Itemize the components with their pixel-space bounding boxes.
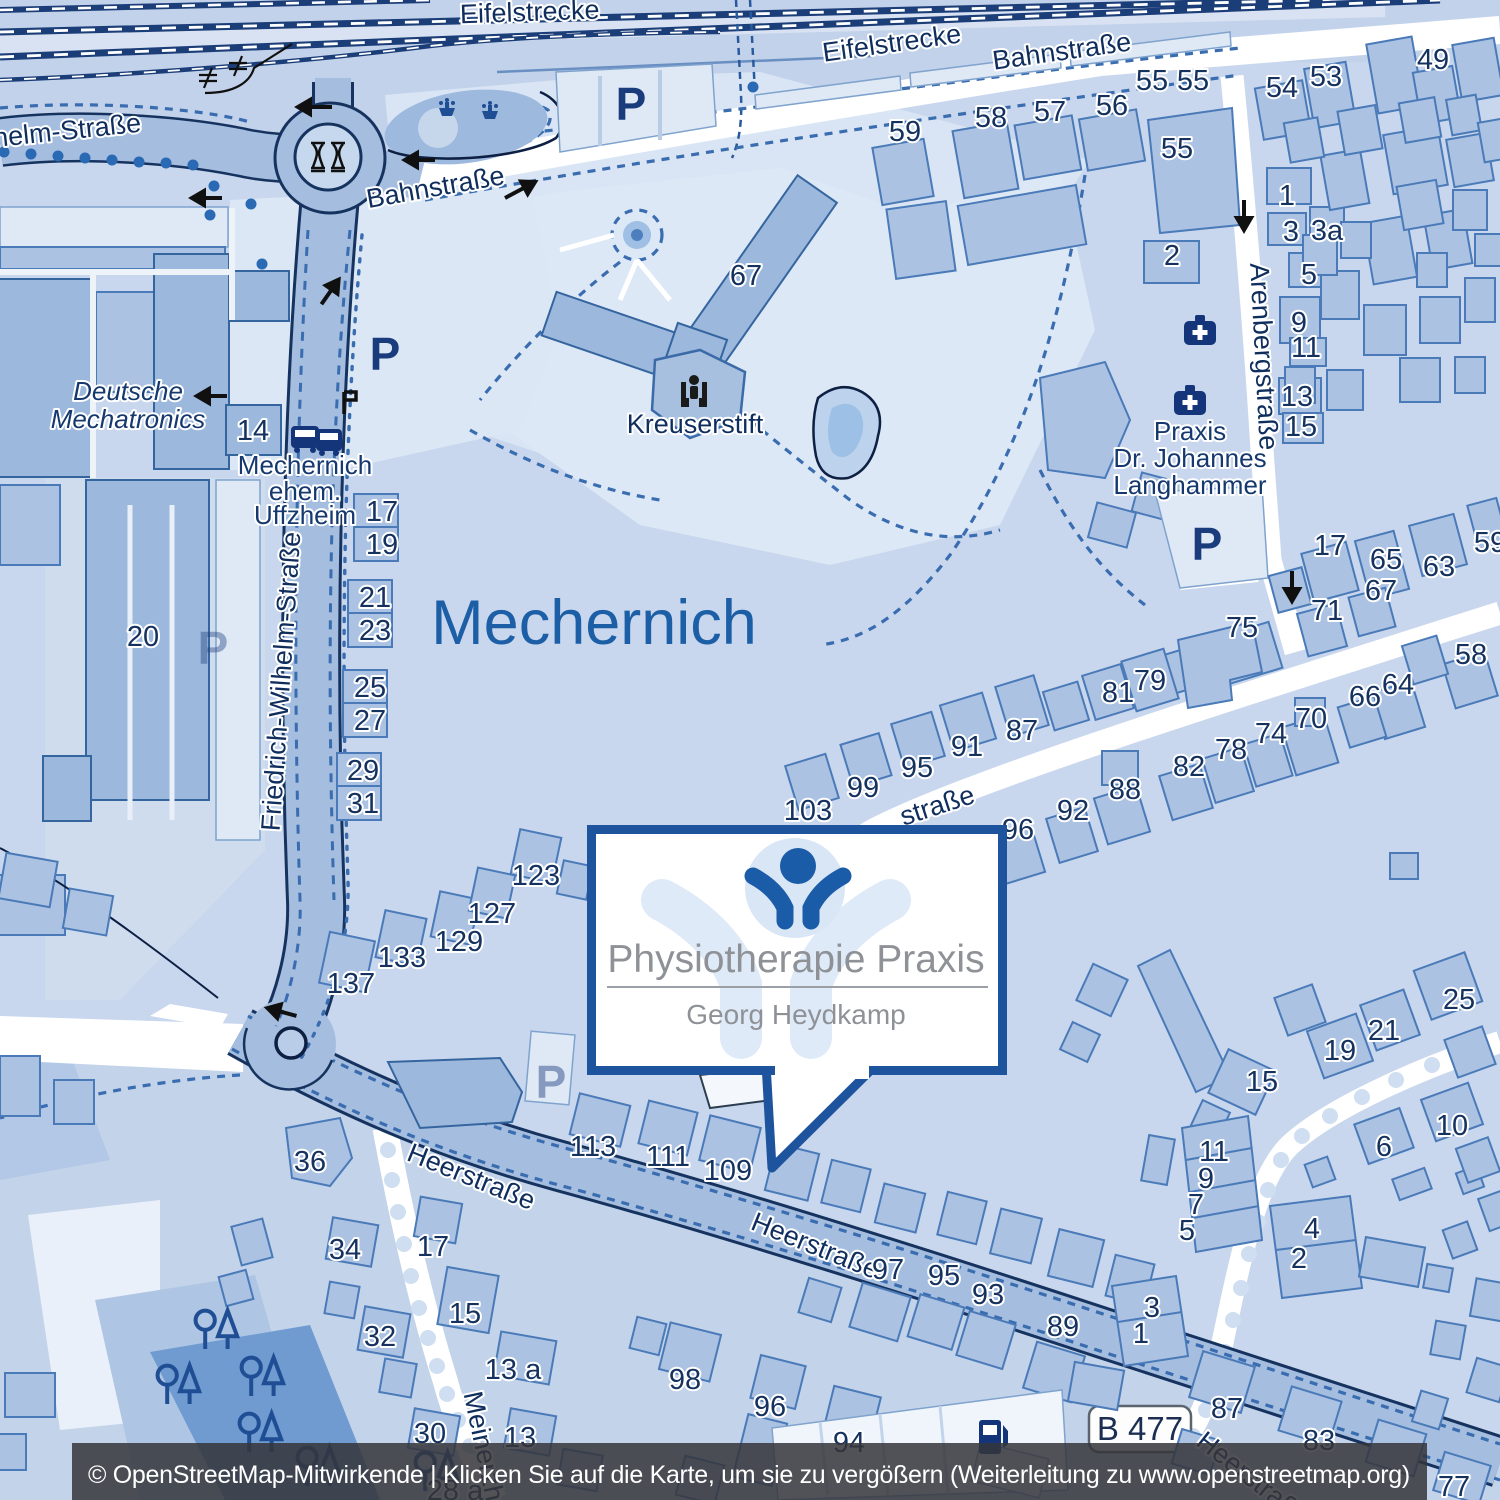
svg-text:15: 15 — [1285, 411, 1317, 443]
svg-text:133: 133 — [378, 942, 426, 974]
svg-text:29: 29 — [347, 755, 379, 787]
svg-text:Langhammer: Langhammer — [1113, 470, 1267, 500]
svg-text:15: 15 — [1246, 1066, 1278, 1098]
svg-text:96: 96 — [754, 1391, 786, 1423]
svg-text:15: 15 — [449, 1298, 481, 1330]
svg-text:5: 5 — [1301, 259, 1317, 291]
svg-text:13 a: 13 a — [485, 1354, 542, 1386]
svg-text:79: 79 — [1134, 665, 1166, 697]
svg-text:31: 31 — [347, 788, 379, 820]
svg-text:91: 91 — [951, 731, 983, 763]
svg-text:63: 63 — [1423, 551, 1455, 583]
svg-text:49: 49 — [1417, 44, 1449, 76]
svg-text:27: 27 — [354, 705, 386, 737]
svg-text:111: 111 — [646, 1141, 690, 1173]
svg-text:6: 6 — [1376, 1131, 1392, 1163]
svg-text:78: 78 — [1215, 734, 1247, 766]
svg-text:P: P — [1192, 518, 1223, 570]
svg-text:Mechatronics: Mechatronics — [51, 404, 206, 434]
svg-text:© OpenStreetMap-Mitwirkende |: © OpenStreetMap-Mitwirkende | Klicken Si… — [88, 1461, 1410, 1489]
svg-text:97: 97 — [872, 1254, 904, 1286]
svg-text:11: 11 — [1291, 332, 1321, 364]
svg-text:Georg Heydkamp: Georg Heydkamp — [686, 999, 905, 1030]
svg-text:77: 77 — [1438, 1471, 1470, 1500]
svg-text:36: 36 — [294, 1146, 326, 1178]
svg-text:55: 55 — [1161, 133, 1193, 165]
svg-text:23: 23 — [359, 615, 391, 647]
svg-text:20: 20 — [127, 621, 159, 653]
svg-text:Dr. Johannes: Dr. Johannes — [1113, 443, 1266, 473]
svg-text:95: 95 — [928, 1260, 960, 1292]
svg-text:P: P — [198, 622, 229, 674]
svg-text:2: 2 — [1291, 1243, 1307, 1275]
svg-text:21: 21 — [1368, 1015, 1400, 1047]
svg-text:P: P — [536, 1056, 567, 1108]
svg-text:66: 66 — [1349, 681, 1381, 713]
svg-text:Kreuserstift: Kreuserstift — [627, 409, 764, 439]
svg-text:67: 67 — [730, 260, 762, 292]
svg-text:56: 56 — [1096, 90, 1128, 122]
svg-text:70: 70 — [1295, 703, 1327, 735]
svg-text:71: 71 — [1311, 595, 1343, 627]
svg-text:3a: 3a — [1311, 215, 1344, 247]
svg-text:Praxis: Praxis — [1154, 416, 1226, 446]
svg-text:25: 25 — [1443, 984, 1475, 1016]
svg-text:P: P — [616, 78, 647, 130]
svg-text:1: 1 — [1279, 180, 1295, 212]
svg-text:Mechernich: Mechernich — [431, 588, 757, 658]
svg-text:82: 82 — [1173, 751, 1205, 783]
svg-text:19: 19 — [1324, 1035, 1356, 1067]
svg-text:4: 4 — [1304, 1213, 1320, 1245]
svg-text:137: 137 — [327, 968, 375, 1000]
svg-text:13: 13 — [1281, 381, 1313, 413]
svg-text:59: 59 — [889, 116, 921, 148]
svg-text:14: 14 — [237, 415, 269, 447]
svg-text:75: 75 — [1226, 612, 1258, 644]
svg-text:Uffzheim: Uffzheim — [254, 500, 356, 530]
svg-text:88: 88 — [1109, 774, 1141, 806]
svg-text:113: 113 — [570, 1131, 616, 1163]
svg-text:21: 21 — [359, 582, 391, 614]
svg-text:89: 89 — [1047, 1311, 1079, 1343]
svg-text:Eifelstrecke: Eifelstrecke — [459, 0, 600, 29]
svg-text:55: 55 — [1177, 65, 1209, 97]
svg-text:109: 109 — [704, 1155, 752, 1187]
svg-text:67: 67 — [1365, 575, 1397, 607]
svg-text:98: 98 — [669, 1364, 701, 1396]
svg-text:5: 5 — [1179, 1215, 1195, 1247]
svg-text:53: 53 — [1310, 61, 1342, 93]
svg-text:Deutsche: Deutsche — [73, 376, 183, 406]
svg-text:57: 57 — [1034, 96, 1066, 128]
svg-text:32: 32 — [364, 1321, 396, 1353]
svg-text:Physiotherapie Praxis: Physiotherapie Praxis — [607, 938, 984, 981]
svg-text:92: 92 — [1057, 795, 1089, 827]
svg-text:1: 1 — [1133, 1318, 1149, 1350]
svg-text:123: 123 — [512, 860, 560, 892]
svg-text:95: 95 — [901, 752, 933, 784]
svg-text:55: 55 — [1136, 65, 1168, 97]
svg-text:99: 99 — [847, 772, 879, 804]
svg-text:2: 2 — [1164, 240, 1180, 272]
svg-text:25: 25 — [354, 672, 386, 704]
svg-text:17: 17 — [417, 1231, 449, 1263]
svg-text:65: 65 — [1370, 544, 1402, 576]
svg-text:17: 17 — [366, 496, 398, 528]
svg-text:87: 87 — [1006, 715, 1038, 747]
svg-text:34: 34 — [329, 1234, 361, 1266]
svg-text:93: 93 — [972, 1279, 1004, 1311]
svg-text:74: 74 — [1255, 718, 1287, 750]
svg-text:19: 19 — [366, 529, 398, 561]
svg-text:87: 87 — [1211, 1393, 1243, 1425]
svg-text:17: 17 — [1314, 530, 1346, 562]
svg-text:59: 59 — [1474, 527, 1500, 559]
svg-text:54: 54 — [1266, 72, 1298, 104]
svg-text:P: P — [370, 328, 401, 380]
svg-text:58: 58 — [975, 102, 1007, 134]
svg-text:129: 129 — [435, 926, 483, 958]
svg-text:58: 58 — [1455, 639, 1487, 671]
svg-text:103: 103 — [784, 795, 832, 827]
svg-text:B 477: B 477 — [1097, 1410, 1183, 1447]
svg-text:3: 3 — [1283, 216, 1299, 248]
svg-text:10: 10 — [1436, 1110, 1468, 1142]
svg-text:81: 81 — [1102, 677, 1134, 709]
svg-text:64: 64 — [1382, 669, 1414, 701]
